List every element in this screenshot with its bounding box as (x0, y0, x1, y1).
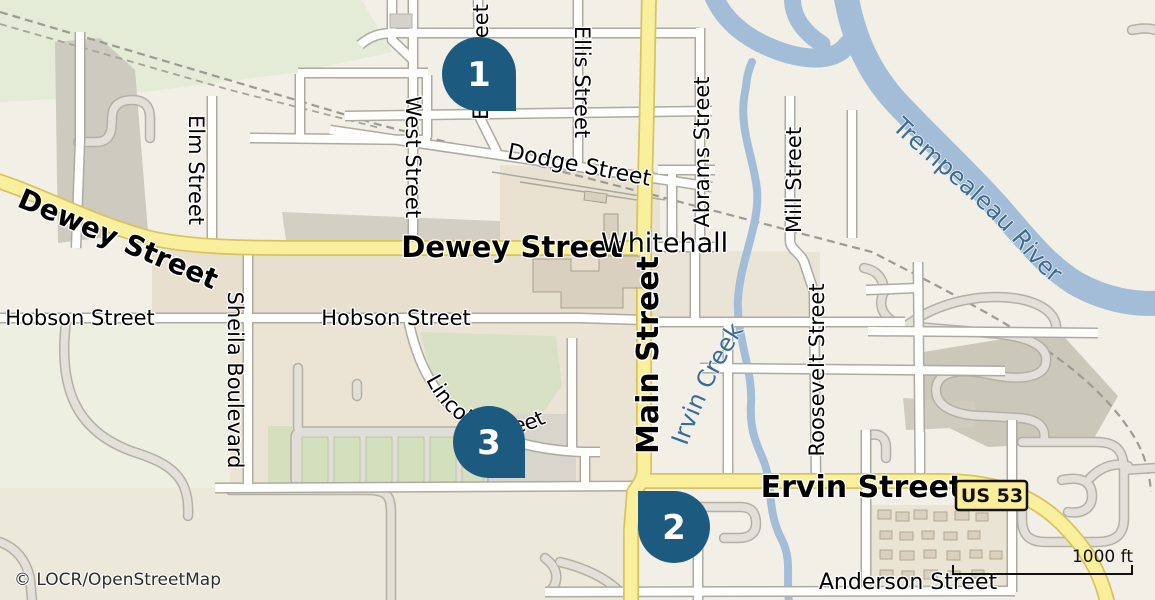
street-label-roosevelt: Roosevelt Street (805, 283, 829, 456)
marker-3-number: 3 (477, 423, 501, 463)
route-badge-us53: US 53 (956, 481, 1027, 510)
place-label-whitehall: Whitehall (601, 228, 728, 259)
scale-label: 1000 ft (1072, 547, 1133, 567)
marker-2-number: 2 (662, 508, 686, 548)
street-label-hobson-west: Hobson Street (5, 306, 155, 330)
street-label-dewey: Dewey Street (401, 230, 623, 264)
street-label-west: West Street (401, 96, 425, 218)
street-label-ervin: Ervin Street (761, 470, 964, 505)
street-label-elm: Elm Street (184, 115, 208, 225)
street-label-mill: Mill Street (782, 127, 806, 233)
marker-2[interactable]: 2 (638, 491, 710, 563)
attribution-link[interactable]: © LOCR/OpenStreetMap (14, 570, 221, 590)
map-viewport[interactable]: Dewey Street Dewey Street Whitehall Main… (0, 0, 1155, 600)
street-label-sheila: Sheila Boulevard (223, 292, 247, 469)
street-label-abrams: Abrams Street (690, 76, 714, 227)
route-badge-label: US 53 (961, 485, 1023, 507)
street-label-main: Main Street (631, 256, 666, 454)
marker-3[interactable]: 3 (453, 406, 525, 478)
street-label-ellis: Ellis Street (570, 26, 594, 138)
map-canvas[interactable]: Dewey Street Dewey Street Whitehall Main… (0, 0, 1155, 600)
marker-1-number: 1 (467, 55, 491, 95)
street-label-hobson-east: Hobson Street (321, 306, 471, 330)
marker-1[interactable]: 1 (442, 37, 516, 111)
